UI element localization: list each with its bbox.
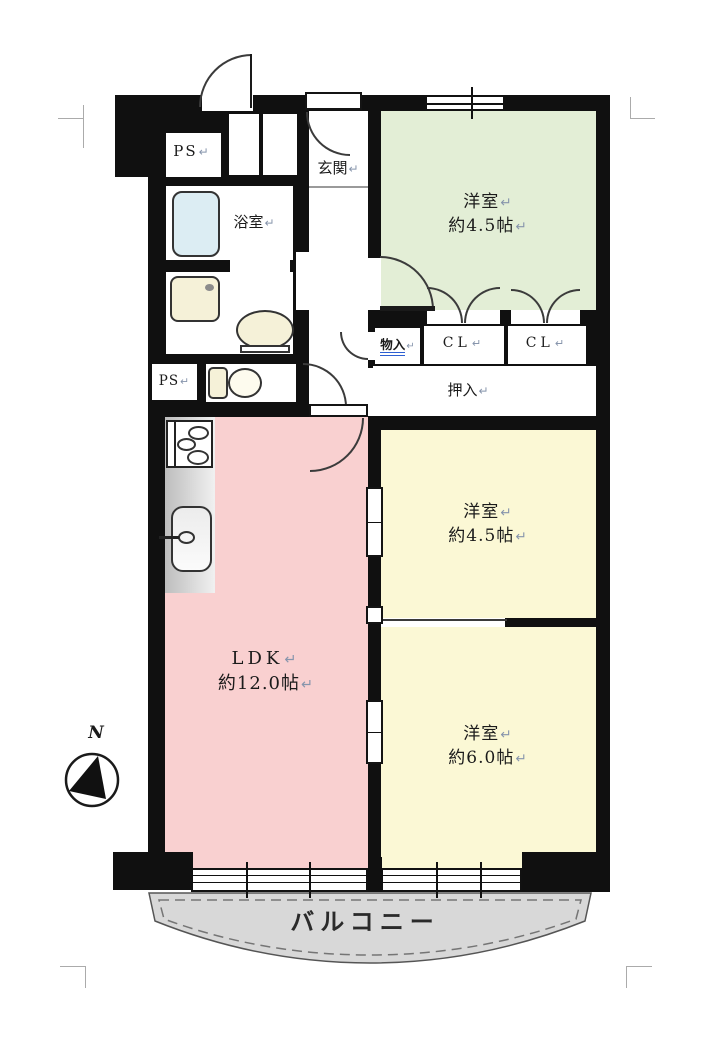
washing-machine-pan [170,276,220,322]
shoe-cabinet [263,114,297,175]
balcony-label: バルコニー [240,906,490,940]
faucet-handle [159,536,179,539]
entrance-alcove [305,92,362,110]
label-ps-top: PS↵ [163,141,221,162]
window-tick [309,862,311,898]
label-genkan: 玄関↵ [308,158,368,179]
window-bedroom-balcony [381,868,522,892]
washbasin-stand [240,345,290,353]
crop-mark-bottom-right [626,966,627,988]
label-closet-left: CL↵ [426,334,502,354]
window-ldk-balcony [191,868,368,892]
shoe-cabinet [229,114,259,175]
ldk-door-leaf [309,404,368,417]
crop-mark-bottom-left [60,966,86,967]
sliding-door-bedroom-mid [366,487,383,557]
wall-ldk-bedroom [368,417,381,860]
label-room-western-green: 洋室↵ 約4.5帖↵ [398,191,578,239]
bathtub [172,191,220,257]
wall-corner-bottom-right [522,852,610,892]
window-green-room [425,95,505,111]
entrance-door-leaf [250,54,252,108]
window-tick [471,87,473,119]
label-closet-right: CL↵ [510,334,584,354]
compass-icon [56,718,136,814]
floor-plan-page: バルコニー [0,0,720,1040]
label-ps-lower: PS↵ [152,372,197,391]
stove-burner [177,438,196,451]
label-room-western-bottom: 洋室↵ 約6.0帖↵ [398,723,578,771]
sliding-door-rail [368,732,381,733]
label-room-ldk: LDK↵ 約12.0帖↵ [176,646,356,696]
washroom-door-opening [296,252,309,310]
crop-mark-bottom-left [85,966,86,988]
label-bathroom: 浴室↵ [222,212,286,233]
wall-oshiire-bottom [368,416,610,430]
sliding-door-rail [368,522,381,523]
crop-mark-top-left [83,105,84,148]
crop-mark-top-right [630,118,655,119]
toilet-bowl [228,368,262,398]
window-tick [480,862,482,898]
stove-burner [187,450,209,465]
stove [166,420,213,468]
window-tick [246,862,248,898]
genkan-step-line [309,186,368,188]
label-room-western-mid: 洋室↵ 約4.5帖↵ [398,501,578,549]
drain-dot [205,284,214,291]
wall-right [596,111,610,861]
bedroom-divider-line [381,619,507,621]
label-monoire: 物入↵ [375,336,420,354]
crop-mark-top-right [630,97,631,119]
wall-opening-small [366,606,383,624]
stove-grill-line [174,422,176,466]
sliding-door-bedroom-bottom [366,700,383,764]
wall-corner-bottom-left [113,852,193,890]
faucet [178,531,195,544]
wall-bottom-center [368,857,382,892]
label-oshiire: 押入↵ [408,380,528,401]
crop-mark-top-left [58,118,84,119]
crop-mark-bottom-right [626,966,652,967]
entrance-door-arc [199,54,252,107]
washbasin [236,310,294,350]
toilet-tank [208,367,228,399]
wall-corner-top-left [115,95,148,177]
window-tick [436,862,438,898]
